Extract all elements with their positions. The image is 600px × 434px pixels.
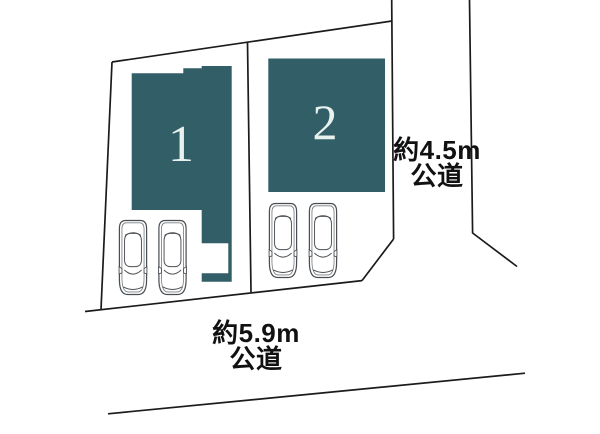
right-road-right-edge-line xyxy=(470,0,518,267)
bottom-road-type-text: 公道 xyxy=(212,346,300,372)
car-top-view-icon xyxy=(119,220,147,294)
lot-boundary-left-line xyxy=(101,62,112,310)
right-road-type-text: 公道 xyxy=(393,163,481,189)
car-top-view-icon xyxy=(309,203,337,277)
lot2-front-corner-line xyxy=(362,239,394,281)
bottom-road-far-edge-line xyxy=(108,373,525,414)
bottom-road-width-text: 約5.9m xyxy=(212,320,300,346)
lot-boundary-top-line xyxy=(112,21,392,62)
lot-divider-line xyxy=(248,42,252,292)
right-road-width-text: 約4.5m xyxy=(393,137,481,163)
plot-map-svg xyxy=(0,0,600,434)
car-top-view-icon xyxy=(159,220,187,294)
lot-1-number-label: 1 xyxy=(168,119,194,171)
right-road-label: 約4.5m 公道 xyxy=(393,137,481,189)
lot-2-number-label: 2 xyxy=(313,97,338,147)
plot-layout-diagram: 1 2 約4.5m 公道 約5.9m 公道 xyxy=(0,0,600,434)
right-road-left-edge-line xyxy=(392,0,394,239)
car-top-view-icon xyxy=(269,203,297,277)
bottom-road-label: 約5.9m 公道 xyxy=(212,320,300,372)
